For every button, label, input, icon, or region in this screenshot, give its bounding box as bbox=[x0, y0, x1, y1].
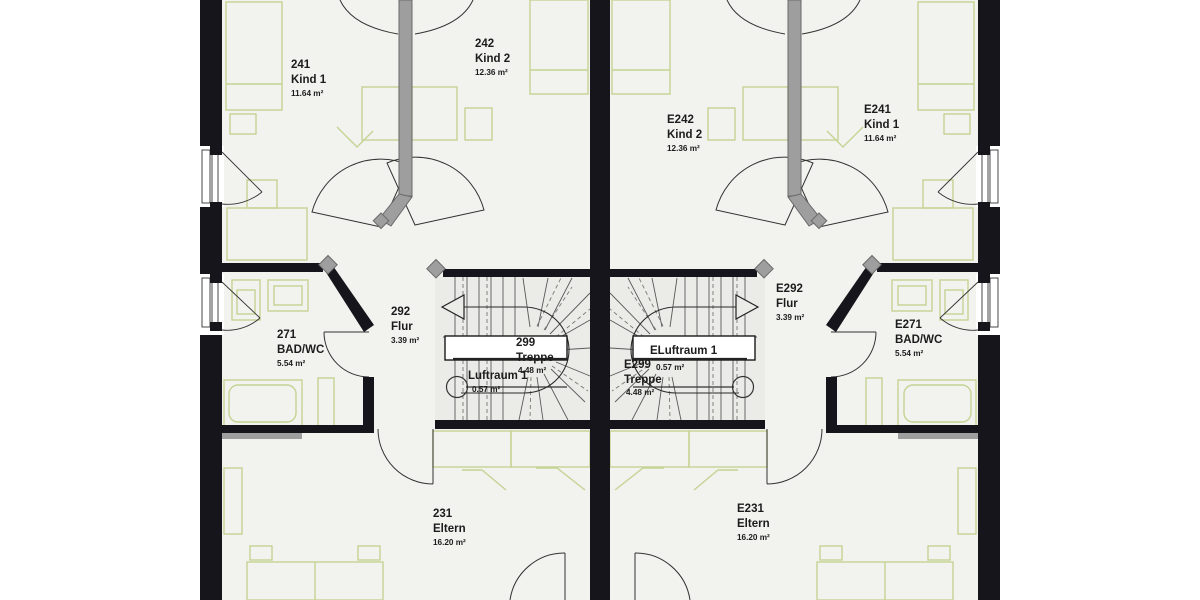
room-name: Kind 1 bbox=[864, 119, 900, 131]
room-area: 0.57 m² bbox=[656, 363, 684, 372]
left-unit bbox=[198, 0, 590, 600]
room-number: 231 bbox=[433, 508, 453, 520]
room-name: Luftraum 1 bbox=[468, 370, 528, 382]
room-area: 5.54 m² bbox=[895, 349, 923, 358]
room-number: 242 bbox=[475, 38, 494, 50]
room-area: 3.39 m² bbox=[391, 336, 419, 345]
room-area: 11.64 m² bbox=[864, 134, 897, 143]
room-number: E242 bbox=[667, 114, 694, 126]
room-number: E231 bbox=[737, 503, 764, 515]
room-area: 0.57 m² bbox=[472, 385, 500, 394]
room-name: Flur bbox=[776, 298, 798, 310]
room-area: 3.39 m² bbox=[776, 313, 804, 322]
room-area: 4.48 m² bbox=[626, 388, 654, 397]
room-name: Flur bbox=[391, 321, 413, 333]
room-number: E271 bbox=[895, 319, 922, 331]
room-name: Treppe bbox=[624, 374, 662, 386]
room-name: Treppe bbox=[516, 352, 554, 364]
room-number: E292 bbox=[776, 283, 803, 295]
room-area: 16.20 m² bbox=[737, 533, 770, 542]
room-name: Kind 2 bbox=[475, 53, 510, 65]
room-number: 292 bbox=[391, 306, 410, 318]
room-number: 299 bbox=[516, 337, 535, 349]
room-name: BAD/WC bbox=[277, 344, 324, 356]
right-unit bbox=[610, 0, 1002, 600]
room-area: 11.64 m² bbox=[291, 89, 324, 98]
room-area: 16.20 m² bbox=[433, 538, 466, 547]
room-name: Eltern bbox=[433, 523, 466, 535]
room-name: Kind 1 bbox=[291, 74, 327, 86]
room-name: ELuftraum 1 bbox=[650, 345, 718, 357]
room-number: 241 bbox=[291, 59, 311, 71]
room-name: Kind 2 bbox=[667, 129, 702, 141]
room-area: 5.54 m² bbox=[277, 359, 305, 368]
floor-plan-canvas: 241 Kind 1 11.64 m² 242 Kind 2 12.36 m² … bbox=[0, 0, 1200, 600]
party-wall bbox=[590, 0, 610, 600]
room-number: E299 bbox=[624, 359, 651, 371]
room-number: 271 bbox=[277, 329, 297, 341]
room-name: BAD/WC bbox=[895, 334, 942, 346]
room-area: 12.36 m² bbox=[475, 68, 508, 77]
room-name: Eltern bbox=[737, 518, 770, 530]
room-number: E241 bbox=[864, 104, 891, 116]
floor-plan-page: 241 Kind 1 11.64 m² 242 Kind 2 12.36 m² … bbox=[0, 0, 1200, 600]
room-area: 12.36 m² bbox=[667, 144, 700, 153]
